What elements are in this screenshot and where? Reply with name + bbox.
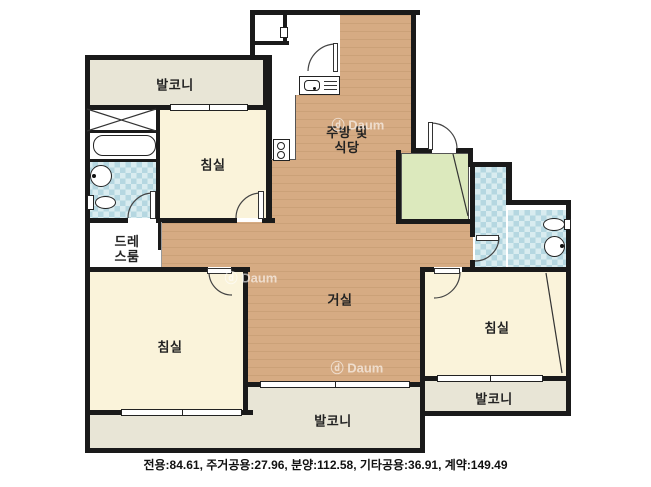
bathroom-right-floor-a [475,167,506,267]
wall-segment [250,10,420,15]
wall-segment [425,411,571,416]
wall-segment [250,41,289,45]
toilet-icon [543,218,565,231]
daum-watermark: ⓓ Daum [225,268,278,287]
daum-watermark: ⓓ Daum [331,358,384,377]
room-label-bedroom-right: 침실 [485,321,510,336]
daum-watermark: ⓓ Daum [332,115,385,134]
wall-segment [462,267,571,272]
wall-segment [87,130,158,133]
washbasin-dot [560,244,564,248]
sink-icon [304,80,320,91]
wall-segment [425,376,437,381]
wall-segment [506,162,512,205]
wall-segment [420,267,425,387]
wall-segment [396,150,401,224]
closet-x-icon [87,109,156,131]
wall-segment [566,205,571,416]
wall-segment [263,55,272,110]
room-label-balcony-right: 발코니 [475,392,512,407]
window-mullion [182,410,183,415]
wall-segment [85,267,208,272]
toilet-icon [95,196,116,209]
wall-segment [85,55,90,453]
room-label-balcony-bottom: 발코니 [314,414,351,429]
door-icon [258,191,264,219]
balcony-bottom-left [90,415,248,448]
wall-segment [396,219,475,224]
area-summary-caption: 전용:84.61, 주거공용:27.96, 분양:112.58, 기타공용:36… [0,456,651,473]
room-label-living: 거실 [328,293,353,308]
wall-segment [411,10,416,153]
wall-segment [243,267,248,415]
wall-segment [85,410,121,415]
window-mullion [335,382,336,387]
cabinet-edge [295,95,296,160]
wall-segment [85,105,170,110]
closet-notch [280,27,288,38]
door-arc [431,123,457,149]
wall-segment [156,218,237,223]
window-icon [170,104,248,111]
door-icon [434,268,460,274]
dressroom-label-line1: 드레 [115,234,140,249]
wall-segment [156,105,160,223]
wall-segment [85,218,128,223]
dish-rack-icon [324,81,337,91]
stove-icon [277,142,285,150]
window-icon [260,381,410,388]
room-label-dressroom: 드레 스룸 [115,234,140,264]
bathtub-icon [93,135,156,156]
sink-drain-dot [313,87,316,90]
wall-segment [508,200,571,205]
wall-segment [87,159,158,162]
threshold-line [161,222,162,267]
door-icon [333,43,338,72]
door-arc [308,44,336,71]
door-icon [150,191,156,219]
wall-segment [470,167,475,237]
window-icon [437,375,543,382]
washbasin-dot [92,174,96,178]
door-icon [476,235,499,241]
toilet-tank [564,219,571,230]
wall-segment [266,105,272,222]
wall-segment [85,55,263,60]
window-icon [121,409,242,416]
pantry-room [401,153,469,221]
room-label-bedroom-bottom-left: 침실 [158,340,183,355]
wall-segment [85,448,425,453]
room-label-bedroom-top-left: 침실 [201,158,226,173]
stove-icon [277,151,285,159]
closet-x-icon [87,109,156,131]
wall-segment [409,382,425,387]
wall-segment [250,10,255,59]
room-label-balcony-top: 발코니 [156,78,193,93]
wall-segment [456,148,473,153]
kitchen-label-line2: 식당 [326,140,368,155]
dressroom-label-line2: 스룸 [115,249,140,264]
floor-plan: 발코니 침실 주방 및 식당 드레 스룸 거실 침실 침실 발코니 발코니 ⓓ … [0,0,651,487]
wall-segment [542,376,571,381]
door-icon [428,122,433,150]
toilet-tank [87,195,94,210]
window-mullion [209,105,210,110]
wall-segment [420,385,425,453]
window-mullion [490,376,491,381]
wall-segment [246,105,272,110]
